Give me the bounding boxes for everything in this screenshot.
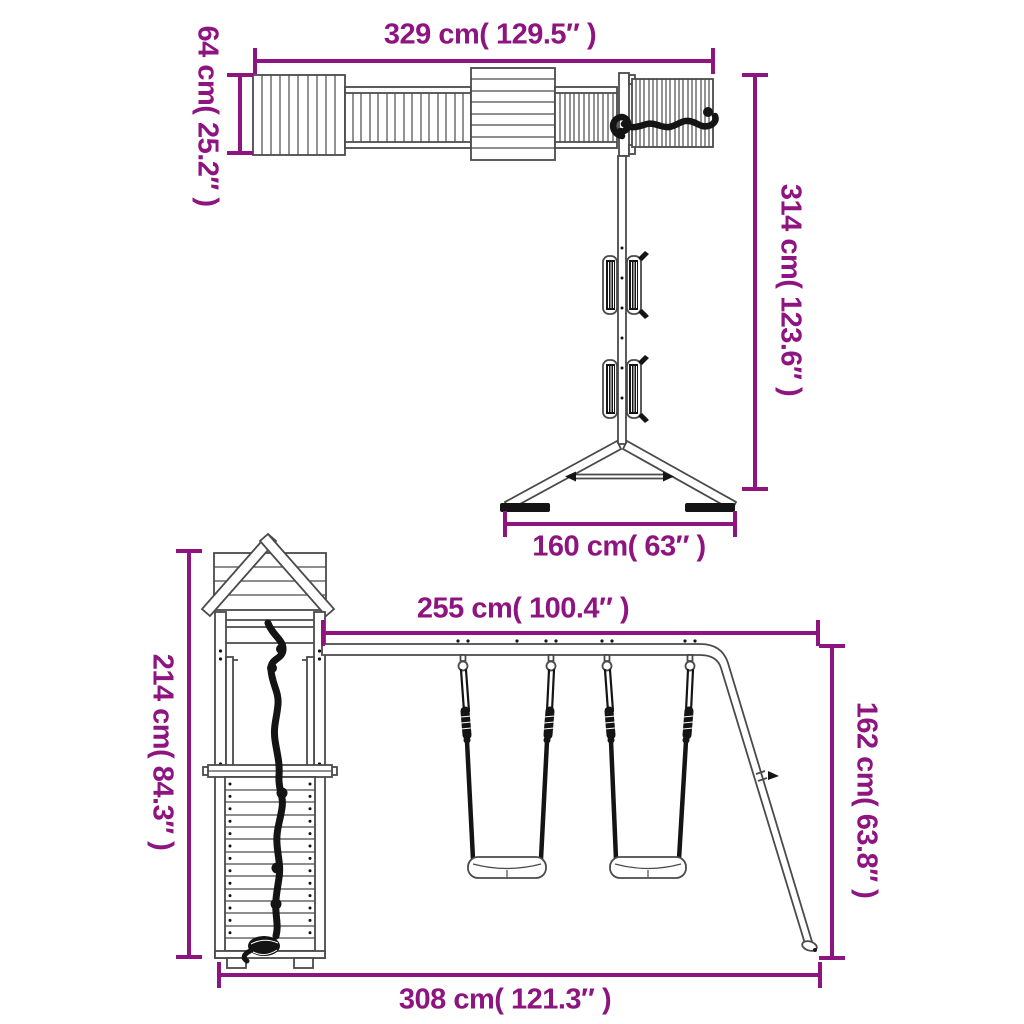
left-slat-block <box>253 75 345 155</box>
bridge-slats-left <box>345 87 471 148</box>
swing-rope <box>461 670 554 859</box>
swing-set <box>322 639 818 952</box>
dim-base-width-top-label: 160 cm( 63″ ) <box>532 531 705 564</box>
tower-feet <box>227 958 313 968</box>
swing-seat <box>468 857 546 878</box>
dimension-diagram: 329 cm( 129.5″ ) 64 cm( 25.2″ ) 314 cm( … <box>0 0 1024 1024</box>
dim-tower-height-label: 214 cm( 84.3″ ) <box>146 654 179 851</box>
dim-top-width-label: 329 cm( 129.5″ ) <box>384 19 596 52</box>
tower-mid-band <box>203 765 337 777</box>
swing-leg-foot <box>801 940 818 953</box>
swing-seat <box>610 857 686 878</box>
dim-swing-height-label: 162 cm( 63.8″ ) <box>850 702 883 899</box>
swing-beam <box>322 644 813 947</box>
beam-bolts <box>456 639 696 642</box>
bridge-slats-right <box>555 87 617 148</box>
a-frame-legs <box>500 441 736 512</box>
support-pole <box>618 156 626 444</box>
playhouse-tower <box>202 534 337 968</box>
swing-hangers <box>459 655 695 671</box>
swing-rope <box>605 670 693 859</box>
dim-bridge-height-label: 64 cm( 25.2″ ) <box>191 26 224 207</box>
dim-base-width-bottom-label: 308 cm( 121.3″ ) <box>399 984 611 1017</box>
monkey-bar-bridge <box>253 68 736 512</box>
dim-beam-width-label: 255 cm( 100.4″ ) <box>417 593 629 626</box>
center-platform <box>471 68 555 160</box>
rope-slat-block <box>632 79 713 147</box>
dim-total-height-label: 314 cm( 123.6″ ) <box>774 184 807 396</box>
climbing-wall <box>225 777 315 951</box>
cross-brace <box>565 472 674 482</box>
